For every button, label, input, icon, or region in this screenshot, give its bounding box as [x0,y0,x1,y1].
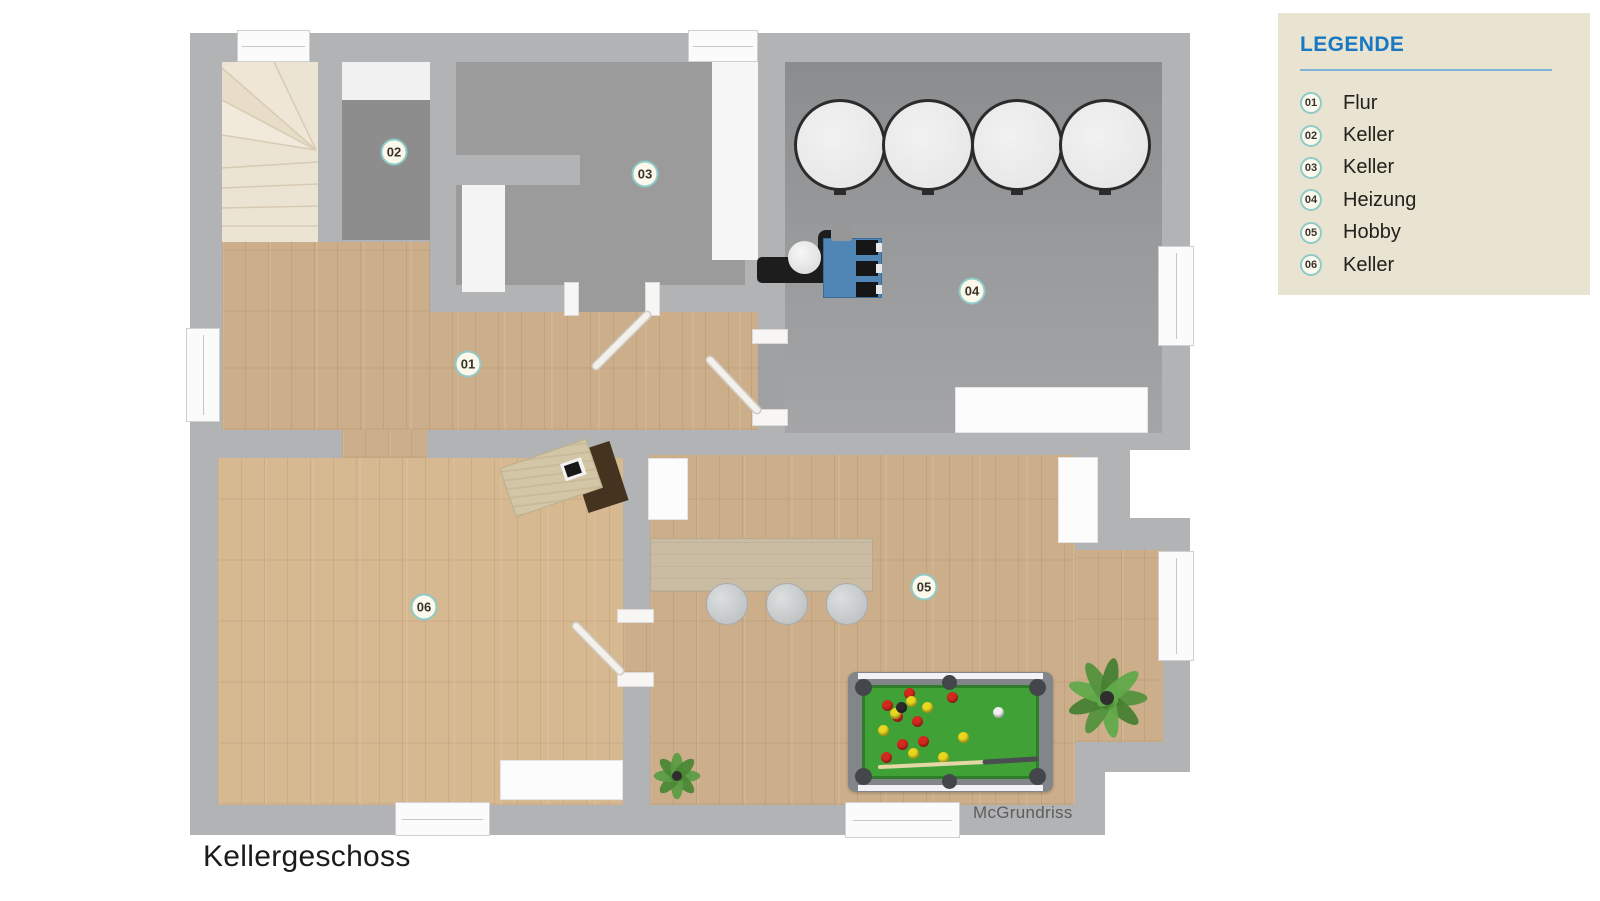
legend-label-05: Hobby [1343,221,1401,244]
legend-label-04: Heizung [1343,189,1416,212]
legend-label-02: Keller [1343,124,1394,147]
legend-badge-03: 03 [1300,157,1322,179]
legend-badge-05: 05 [1300,222,1322,244]
plant-small [654,753,701,800]
legend-item-02: 02Keller [1300,119,1570,151]
legend-badge-06: 06 [1300,254,1322,276]
floor-plan-page: 010203040506 McGrundriss Kellergeschoss … [0,0,1600,901]
room-badge-03: 03 [632,161,659,188]
door-leaf-room05 [576,626,620,671]
legend-label-06: Keller [1343,254,1394,277]
plan-overlay [190,33,1190,835]
room-badge-06: 06 [411,594,438,621]
watermark: McGrundriss [973,803,1073,823]
legend-title: LEGENDE [1300,33,1404,57]
cue-stick [880,762,985,767]
plant-large [1066,657,1147,739]
legend-label-03: Keller [1343,156,1394,179]
door-leaf-room04 [710,360,757,410]
legend-badge-02: 02 [1300,125,1322,147]
legend-item-01: 01Flur [1300,87,1570,119]
room-badge-05: 05 [911,574,938,601]
legend-label-01: Flur [1343,92,1377,115]
room-badge-02: 02 [381,139,408,166]
legend-divider [1300,69,1552,71]
room-badge-04: 04 [959,278,986,305]
room-badge-01: 01 [455,351,482,378]
legend-panel: LEGENDE 01Flur02Keller03Keller04Heizung0… [1278,13,1590,295]
door-leaf-room03 [596,315,647,366]
cue-stick-butt [985,759,1036,762]
legend-item-03: 03Keller [1300,152,1570,184]
legend-item-06: 06Keller [1300,249,1570,281]
legend-badge-04: 04 [1300,189,1322,211]
legend-item-04: 04Heizung [1300,184,1570,216]
page-title: Kellergeschoss [203,840,411,874]
legend-badge-01: 01 [1300,92,1322,114]
legend-items: 01Flur02Keller03Keller04Heizung05Hobby06… [1300,87,1570,281]
legend-item-05: 05Hobby [1300,217,1570,249]
